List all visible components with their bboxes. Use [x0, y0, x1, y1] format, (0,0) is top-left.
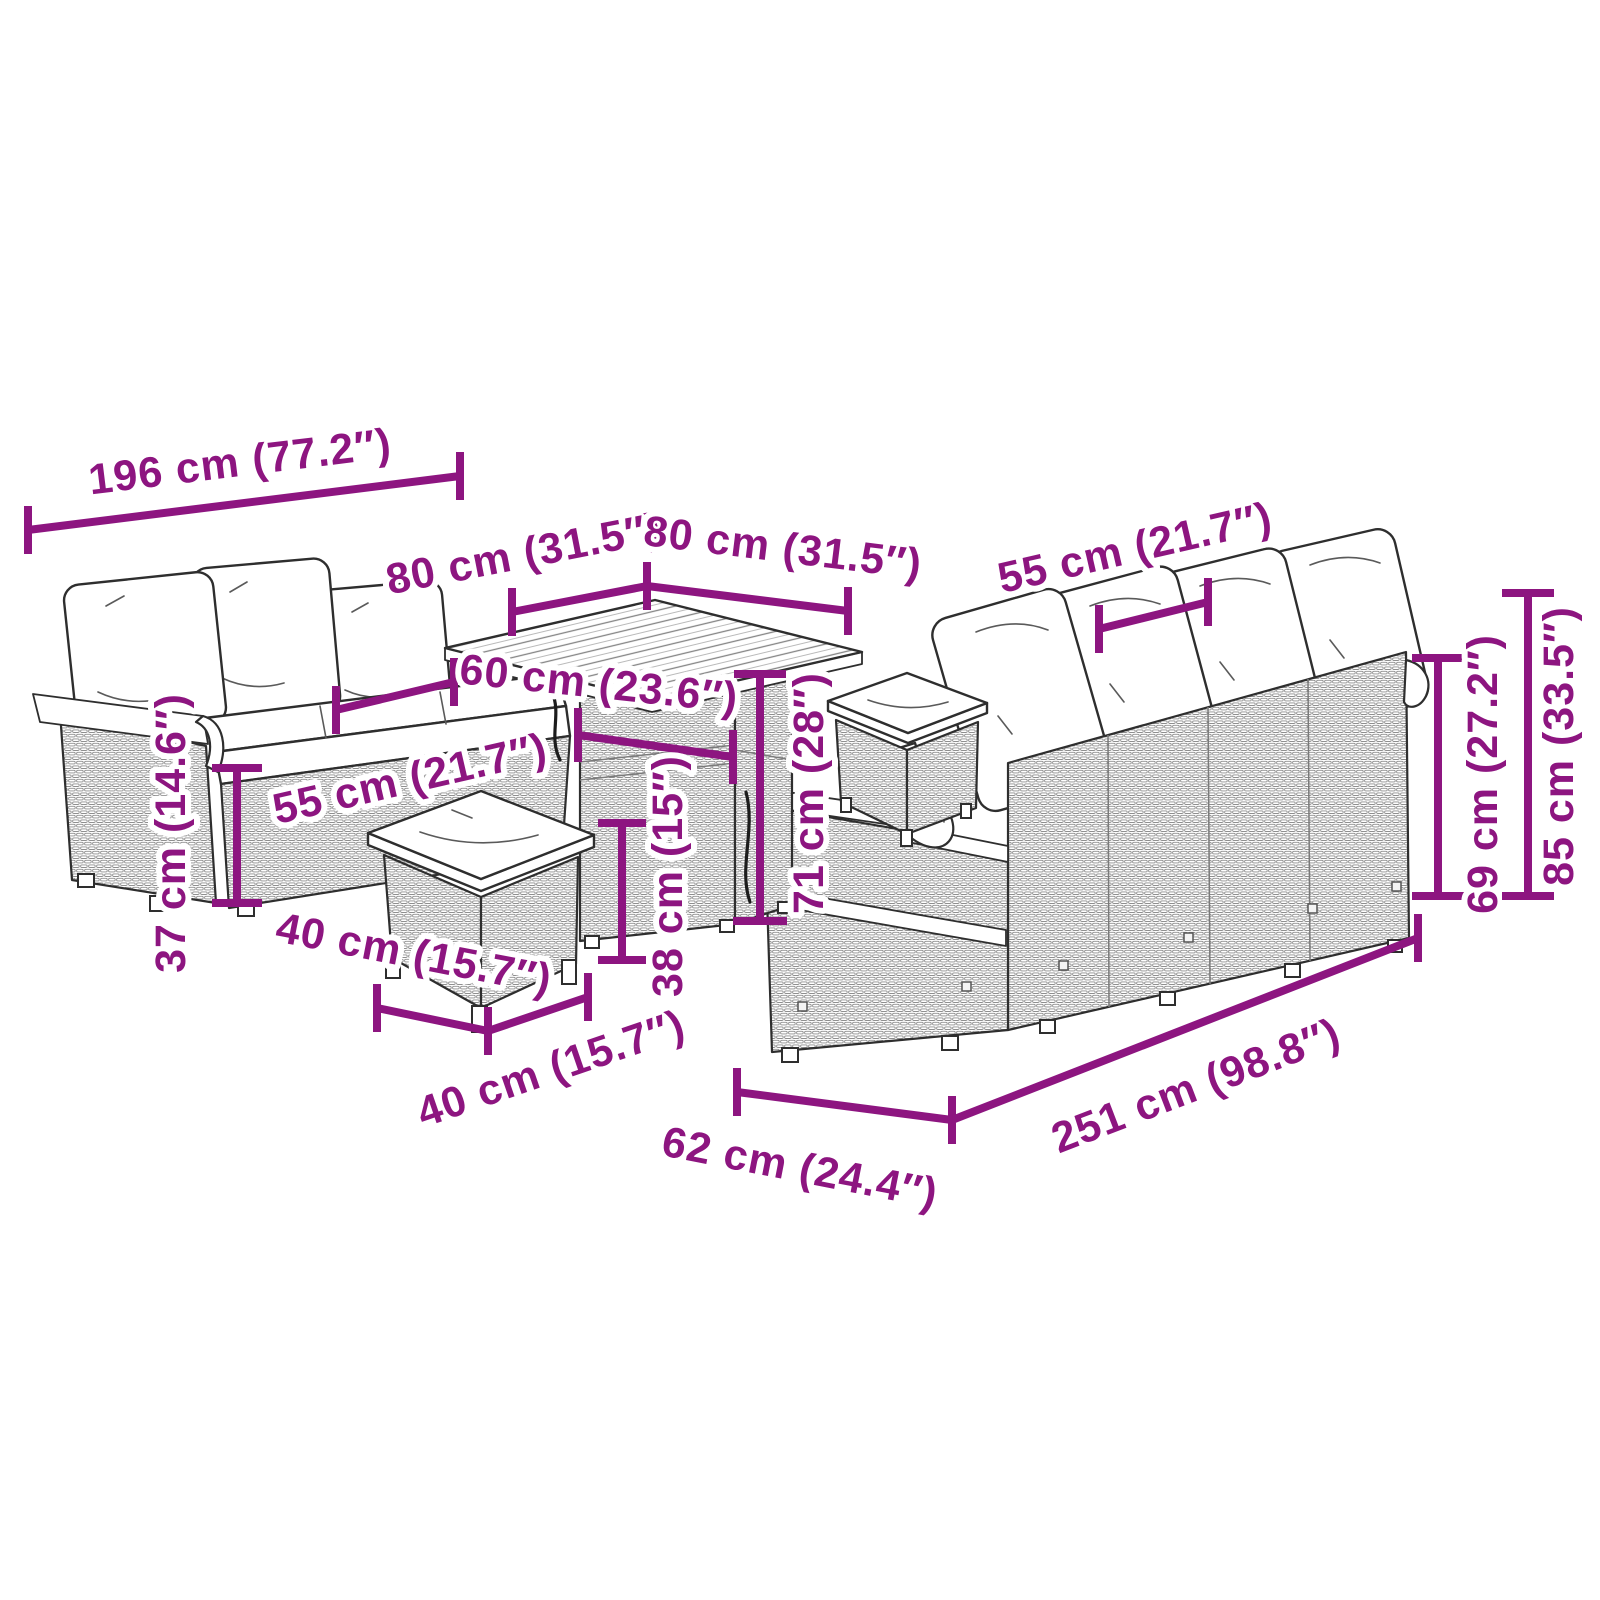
sofa-right-leg	[782, 1048, 798, 1062]
sofa-right-screw	[1059, 961, 1068, 970]
sofa-left-leg	[78, 874, 94, 887]
sofa-right-screw	[798, 1002, 807, 1011]
sofa-right-screw	[962, 982, 971, 991]
dimension-label: 38 cm (15″)	[644, 755, 692, 997]
sofa-right-screw	[1392, 882, 1401, 891]
dimension-sofa-left-width: 196 cm (77.2″)	[28, 420, 460, 554]
dimension-line	[737, 1068, 952, 1120]
sofa-right-screw	[1184, 933, 1193, 942]
dimension-label: 37 cm (14.6″)	[147, 693, 195, 973]
stool-back-leg	[901, 830, 912, 846]
stool-front	[368, 791, 594, 1032]
sofa-right-leg	[1285, 964, 1300, 977]
table-foot	[585, 936, 599, 948]
stool-back-leg	[961, 804, 971, 818]
dimension-label: 251 cm (98.8″)	[1045, 1009, 1347, 1163]
sofa-right-leg	[942, 1036, 958, 1050]
dimension-label: 62 cm (24.4″)	[658, 1118, 942, 1219]
dimension-label: 69 cm (27.2″)	[1459, 634, 1507, 914]
product-dimension-diagram: 196 cm (77.2″) 80 cm (31.5″) 80 cm (31.5…	[0, 0, 1600, 1600]
table-foot	[720, 920, 734, 932]
dimension-sofa-right-depth: 62 cm (24.4″)	[658, 1068, 952, 1218]
sofa-right-leg	[1160, 992, 1175, 1005]
sofa-right-leg	[1040, 1020, 1055, 1033]
dimension-sofa-right-total-height: 85 cm (33.5″)	[1502, 593, 1583, 896]
dimension-label: 85 cm (33.5″)	[1535, 606, 1583, 886]
diagram-canvas: 196 cm (77.2″) 80 cm (31.5″) 80 cm (31.5…	[0, 0, 1600, 1600]
stool-front-leg	[562, 960, 576, 984]
dimension-label: 80 cm (31.5″)	[641, 507, 925, 589]
sofa-right-screw	[1308, 904, 1317, 913]
dimension-label: 71 cm (28″)	[785, 672, 833, 914]
stool-back-leg	[841, 798, 851, 812]
